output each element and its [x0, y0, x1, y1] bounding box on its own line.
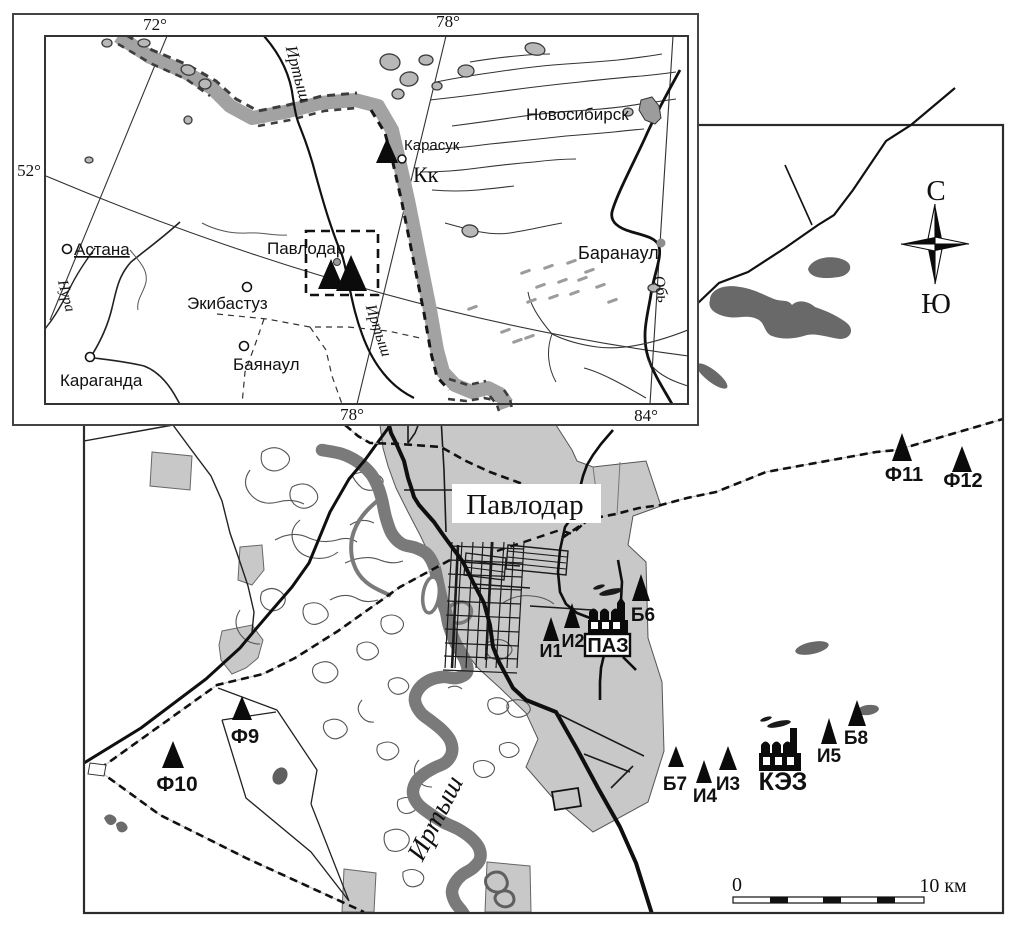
- svg-text:Б7: Б7: [663, 774, 687, 795]
- svg-text:Новосибирск: Новосибирск: [526, 105, 629, 124]
- svg-text:КЭЗ: КЭЗ: [759, 768, 808, 796]
- svg-text:Экибастуз: Экибастуз: [187, 294, 268, 313]
- svg-text:И4: И4: [693, 786, 718, 807]
- svg-text:Ф11: Ф11: [885, 464, 923, 486]
- svg-text:Б8: Б8: [844, 728, 868, 749]
- svg-text:Павлодар: Павлодар: [466, 489, 583, 521]
- svg-text:И2: И2: [562, 631, 585, 651]
- svg-text:Кк: Кк: [413, 162, 439, 187]
- svg-text:84°: 84°: [634, 406, 658, 425]
- svg-text:72°: 72°: [143, 15, 167, 34]
- svg-text:С: С: [926, 175, 945, 207]
- svg-text:78°: 78°: [340, 405, 364, 424]
- svg-text:Карасук: Карасук: [404, 137, 460, 154]
- svg-text:И5: И5: [817, 746, 842, 767]
- svg-text:Ю: Ю: [921, 288, 951, 320]
- svg-text:Ф10: Ф10: [156, 773, 197, 796]
- svg-text:78°: 78°: [436, 12, 460, 31]
- svg-text:ПАЗ: ПАЗ: [587, 635, 628, 657]
- svg-text:Астана: Астана: [74, 240, 130, 259]
- svg-text:И1: И1: [540, 641, 563, 661]
- svg-text:0: 0: [732, 874, 742, 896]
- svg-text:И3: И3: [716, 774, 740, 795]
- svg-text:Караганда: Караганда: [60, 371, 143, 390]
- svg-text:Баранаул: Баранаул: [578, 243, 659, 263]
- svg-text:Павлодар: Павлодар: [267, 239, 345, 258]
- svg-text:Б6: Б6: [631, 605, 655, 626]
- svg-text:10 км: 10 км: [919, 875, 967, 897]
- svg-text:52°: 52°: [17, 161, 41, 180]
- svg-text:Ф12: Ф12: [943, 470, 982, 492]
- svg-text:Баянаул: Баянаул: [233, 355, 300, 374]
- svg-text:Ф9: Ф9: [231, 726, 259, 748]
